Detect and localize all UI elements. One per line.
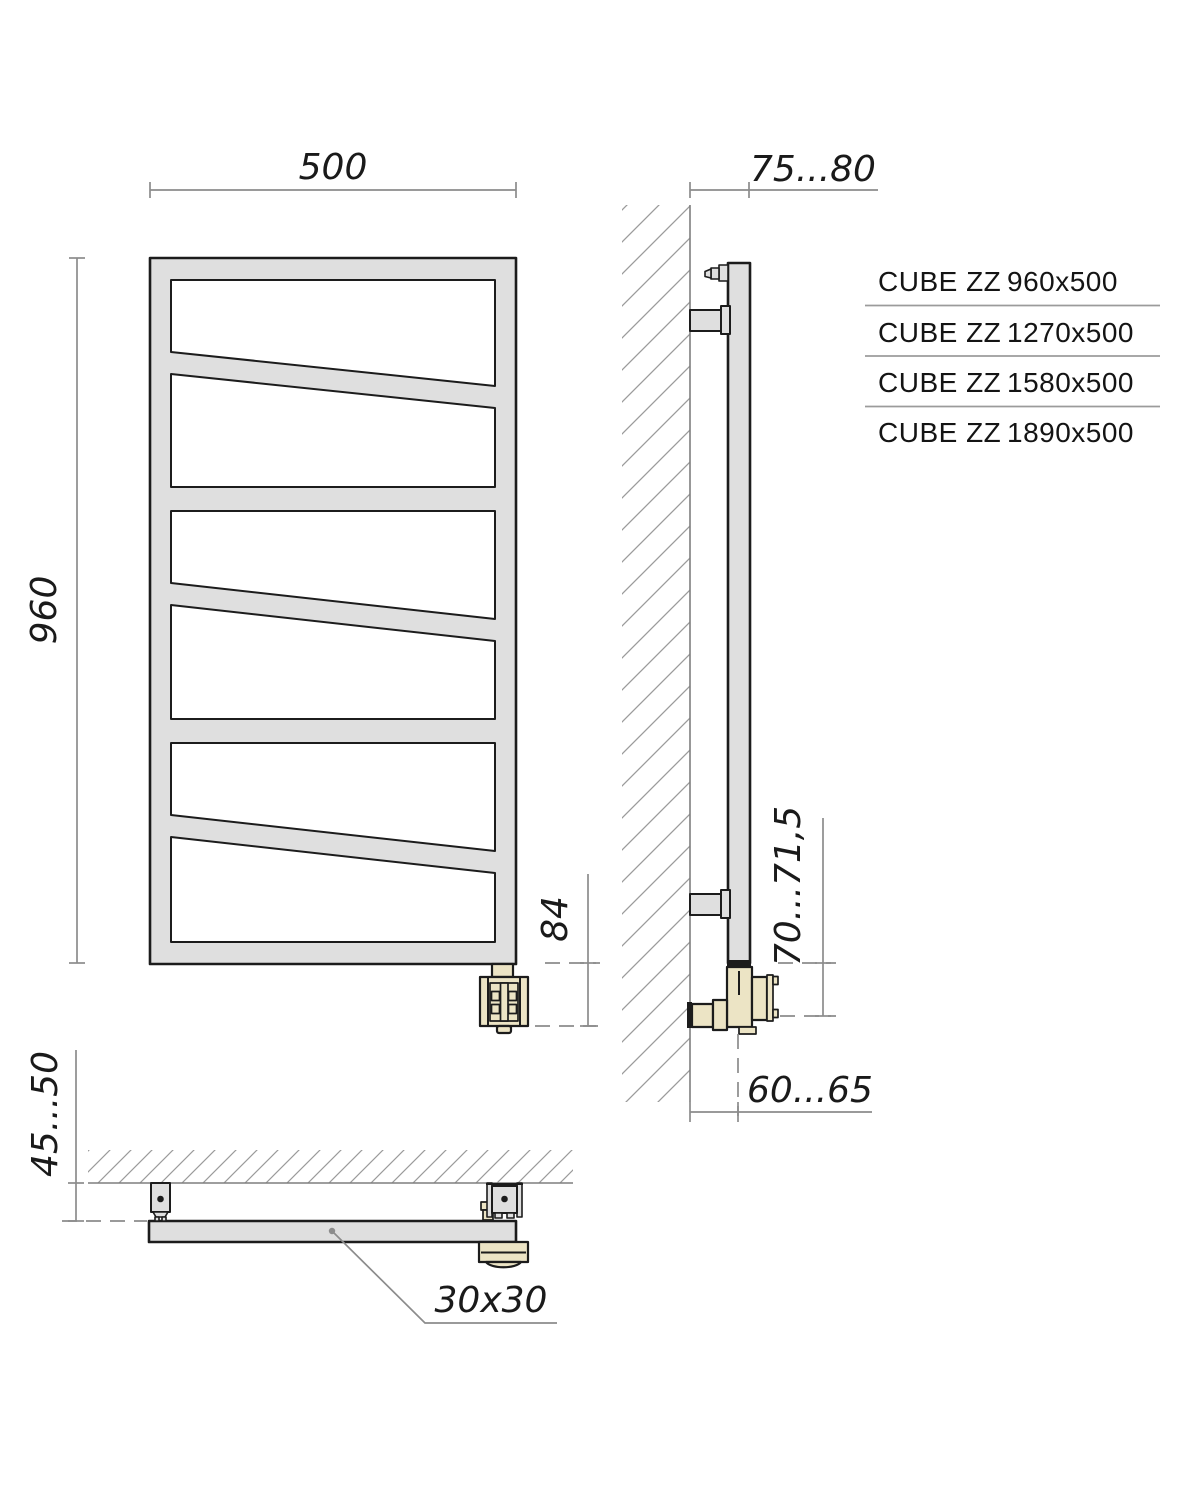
side-view xyxy=(622,205,778,1102)
valve-spindle xyxy=(501,983,509,1021)
drawing-page: 500 960 84 xyxy=(0,0,1189,1500)
product-name: CUBE ZZ xyxy=(878,266,1001,297)
connection-offset-dimension: 60...65 xyxy=(690,1034,873,1122)
air-vent-tip xyxy=(705,269,711,278)
front-valve xyxy=(480,964,528,1033)
bracket-screw xyxy=(501,1196,508,1203)
side-valve xyxy=(687,960,778,1034)
valve-detail xyxy=(492,992,500,1001)
product-size: 1890x500 xyxy=(1007,417,1134,448)
front-height-label: 960 xyxy=(24,576,65,645)
connection-height-label: 70...71,5 xyxy=(768,806,809,966)
valve-bottom-arc xyxy=(486,1262,521,1267)
air-vent-collar xyxy=(719,265,728,281)
wall-clearance-dimension: 45...50 xyxy=(25,1050,147,1221)
bottom-bracket-left xyxy=(151,1183,170,1221)
valve-side-block xyxy=(752,977,767,1020)
side-tube xyxy=(728,263,750,963)
valve-tab xyxy=(773,1010,778,1018)
technical-drawing: 500 960 84 xyxy=(0,0,1189,1500)
wall-depth-dimension: 75...80 xyxy=(690,149,878,198)
bracket-body xyxy=(690,310,721,331)
tube-profile-label: 30x30 xyxy=(435,1280,548,1321)
bottom-valve xyxy=(479,1242,528,1267)
wall-pipe xyxy=(692,1004,713,1027)
product-size: 960x500 xyxy=(1007,266,1118,297)
air-vent-body xyxy=(711,268,719,279)
product-name: CUBE ZZ xyxy=(878,367,1001,398)
valve-drop-label: 84 xyxy=(535,896,576,942)
bracket-body xyxy=(690,894,721,915)
bracket-foot xyxy=(162,1217,166,1221)
product-name: CUBE ZZ xyxy=(878,417,1001,448)
bracket-foot xyxy=(155,1217,159,1221)
valve-nub xyxy=(739,1027,756,1034)
valve-detail xyxy=(492,1005,500,1014)
wall-hatch xyxy=(88,1150,573,1183)
product-row: CUBE ZZ 960x500 xyxy=(0,0,1159,297)
air-vent xyxy=(705,265,728,281)
front-width-label: 500 xyxy=(299,147,368,188)
wall-bracket-bottom xyxy=(690,890,730,918)
wall-clearance-label: 45...50 xyxy=(25,1051,66,1177)
wall-bracket-top xyxy=(690,306,730,334)
bottom-view xyxy=(88,1150,573,1267)
front-height-dimension: 960 xyxy=(24,258,85,963)
product-size: 1580x500 xyxy=(1007,367,1134,398)
pipe-nut xyxy=(713,1000,727,1030)
bracket-foot xyxy=(507,1213,514,1218)
front-view xyxy=(150,258,528,1033)
valve-detail xyxy=(509,1005,517,1014)
valve-connector xyxy=(492,964,513,977)
valve-detail xyxy=(509,992,517,1001)
bracket-collar xyxy=(721,890,730,918)
pipe-wall-cap xyxy=(687,1002,692,1028)
bracket-screw xyxy=(157,1196,164,1203)
valve-drop-dimension: 84 xyxy=(535,874,600,1026)
wall-depth-label: 75...80 xyxy=(750,149,876,190)
wall-hatch xyxy=(622,205,690,1102)
connection-offset-label: 60...65 xyxy=(747,1070,873,1111)
valve-tab xyxy=(773,977,778,985)
product-name: CUBE ZZ xyxy=(878,317,1001,348)
front-width-dimension: 500 xyxy=(150,147,516,198)
valve-plate xyxy=(767,975,773,1021)
bracket-collar xyxy=(721,306,730,334)
valve-nub xyxy=(497,1026,511,1033)
product-size: 1270x500 xyxy=(1007,317,1134,348)
bracket-foot xyxy=(495,1213,502,1218)
bottom-bracket-right xyxy=(481,1183,523,1220)
